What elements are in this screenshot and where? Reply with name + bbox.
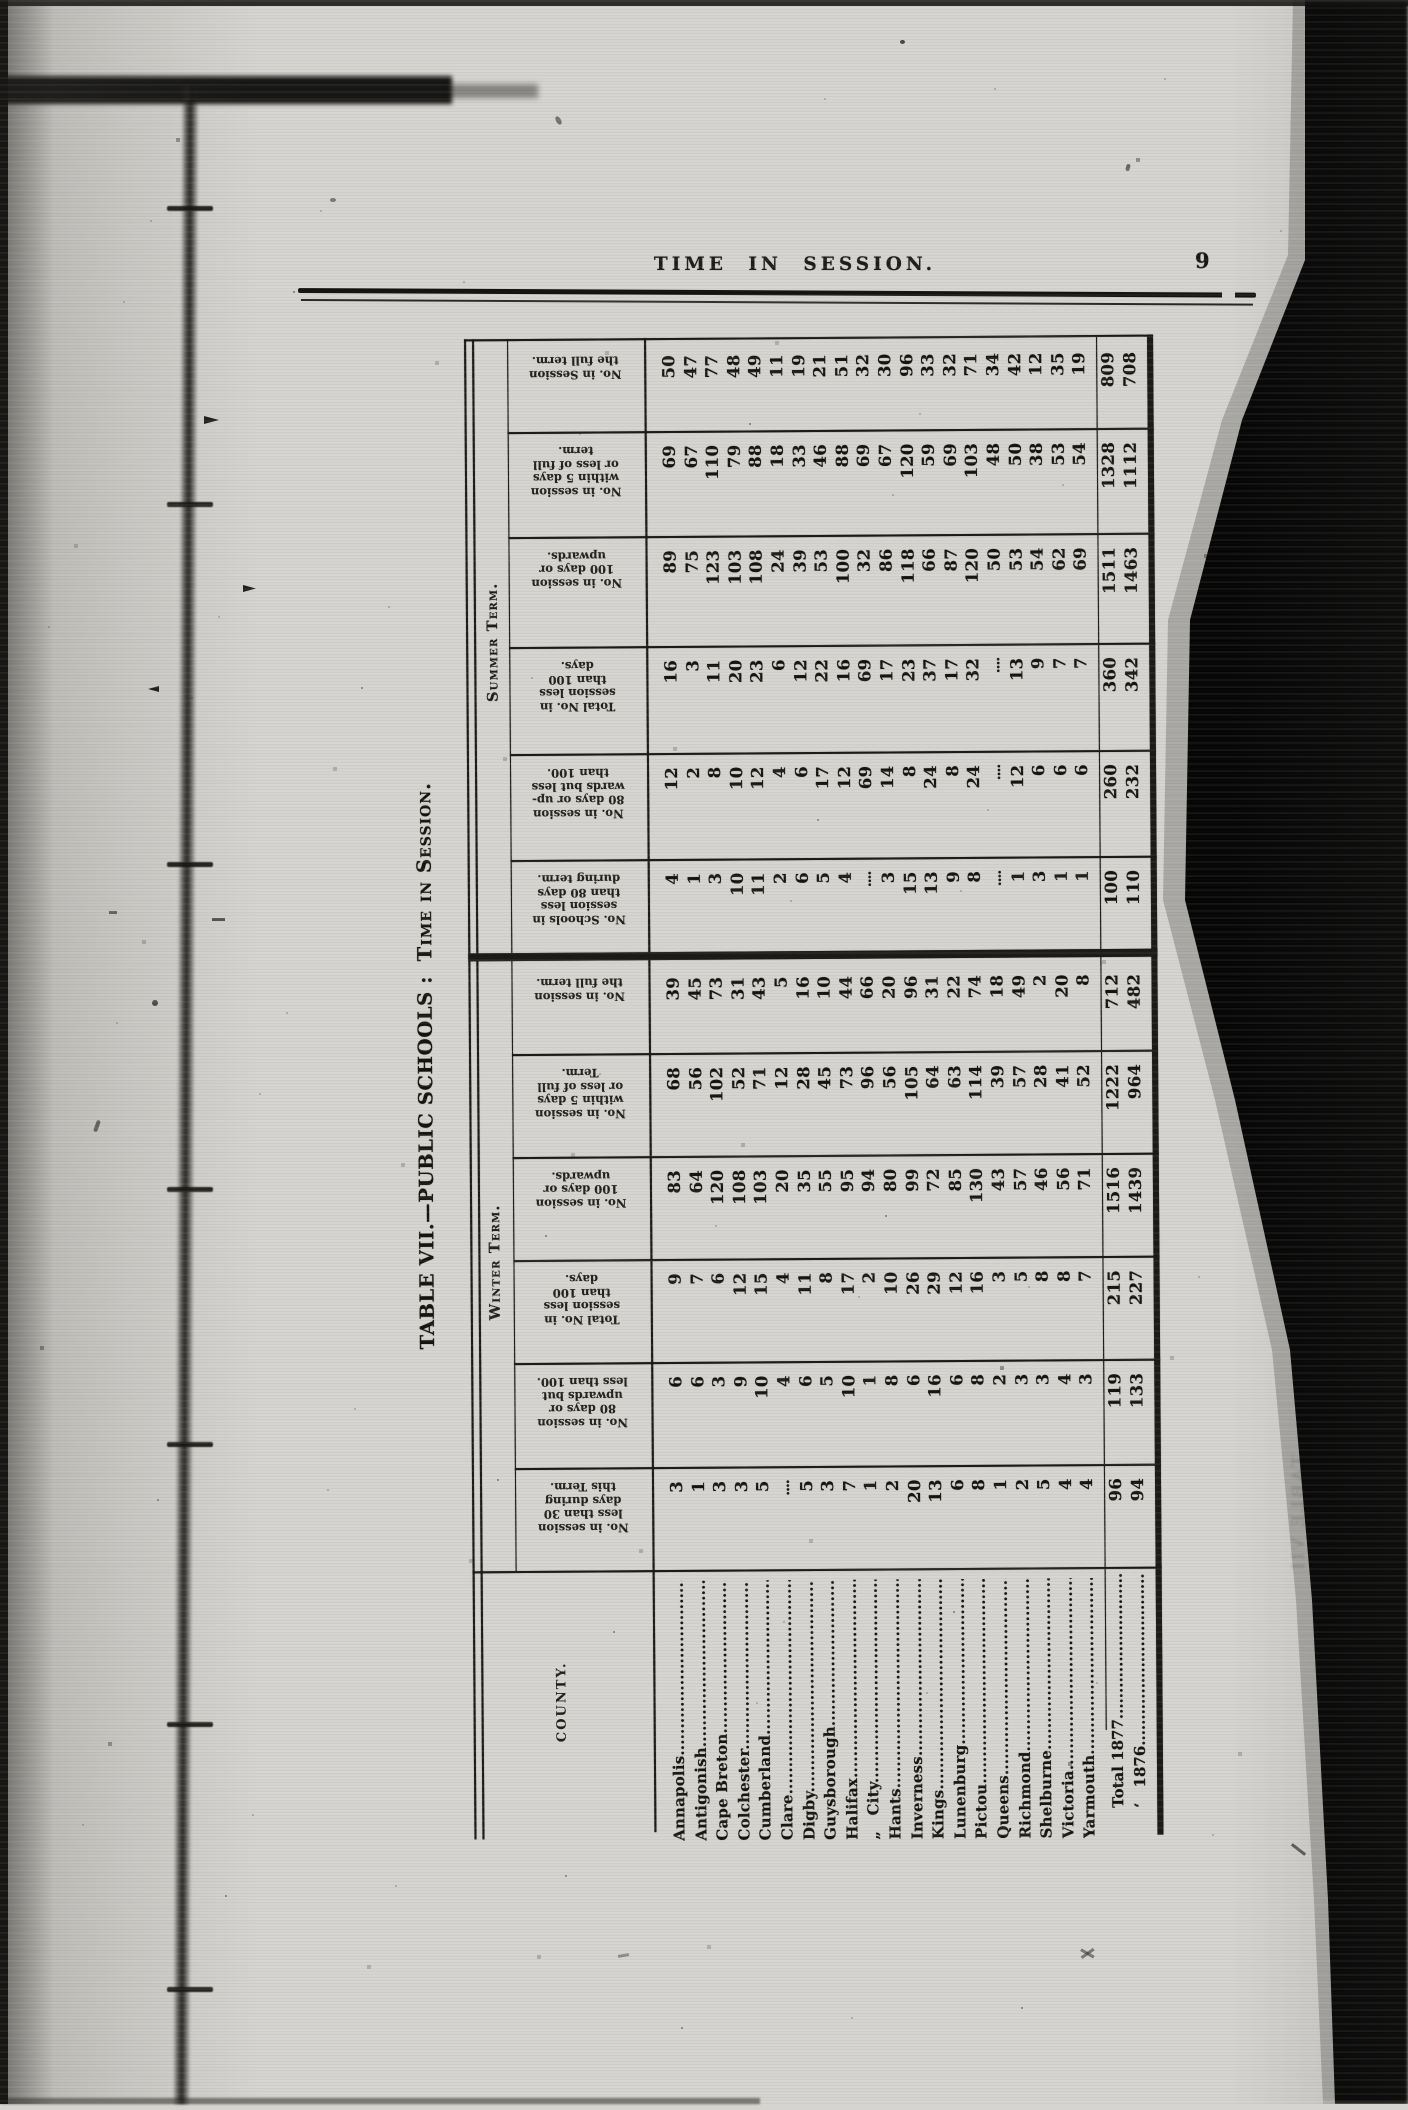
data-cell: 4 bbox=[770, 766, 790, 826]
data-cell: 67 bbox=[876, 443, 896, 503]
total-cell: 227 bbox=[1127, 1270, 1147, 1330]
data-cell: 6 bbox=[688, 1376, 708, 1436]
data-cell: .... bbox=[985, 658, 1005, 718]
data-cell: 3 bbox=[683, 660, 703, 720]
data-cell: 94 bbox=[859, 1169, 879, 1229]
data-cell: 5 bbox=[817, 1375, 837, 1435]
total-cell: 96 bbox=[1106, 1478, 1126, 1538]
data-cell: 53 bbox=[1049, 442, 1069, 502]
data-cell: 86 bbox=[877, 548, 897, 608]
data-cell: 28 bbox=[1031, 1064, 1051, 1124]
data-cell: 39 bbox=[663, 977, 683, 1037]
data-cell: 15 bbox=[900, 871, 920, 931]
data-cell: 51 bbox=[832, 354, 852, 414]
data-cell: 120 bbox=[708, 1170, 728, 1230]
data-cell: 11 bbox=[767, 354, 787, 414]
data-cell: 8 bbox=[882, 1374, 902, 1434]
data-cell: 103 bbox=[962, 443, 982, 503]
data-cell: 102 bbox=[707, 1067, 727, 1127]
data-cell: 3 bbox=[710, 1481, 730, 1541]
scan-top-edge bbox=[0, 0, 1408, 6]
data-cell: 5 bbox=[753, 1480, 773, 1540]
total-cell: 482 bbox=[1124, 974, 1144, 1034]
data-cell: 3 bbox=[818, 1480, 838, 1540]
stitch-mark bbox=[167, 502, 213, 507]
data-cell: 1 bbox=[991, 1479, 1011, 1539]
data-cell: 10 bbox=[727, 766, 747, 826]
data-cell: 120 bbox=[897, 443, 917, 503]
data-cell: 16 bbox=[661, 660, 681, 720]
data-cell: 5 bbox=[814, 872, 834, 932]
data-cell: 8 bbox=[965, 871, 985, 931]
data-cell: 16 bbox=[834, 659, 854, 719]
data-cell: 11 bbox=[749, 872, 769, 932]
data-cell: .... bbox=[775, 1480, 795, 1540]
county-label: Guysborough.............................… bbox=[819, 1580, 841, 1840]
county-label: Colchester..............................… bbox=[732, 1580, 754, 1840]
data-cell: 2 bbox=[684, 767, 704, 827]
data-cell: 10 bbox=[753, 1375, 773, 1435]
data-cell: 3 bbox=[1012, 1373, 1032, 1433]
data-cell: 13 bbox=[926, 1479, 946, 1539]
data-cell: 54 bbox=[1070, 442, 1090, 502]
data-cell: 99 bbox=[902, 1168, 922, 1228]
data-cell: 3 bbox=[706, 873, 726, 933]
total-cell: 94 bbox=[1128, 1478, 1148, 1538]
data-cell: 4 bbox=[836, 872, 856, 932]
term-group-label: Winter Term. bbox=[485, 1097, 504, 1427]
total-cell: 100 bbox=[1102, 870, 1122, 930]
data-cell: 12 bbox=[835, 766, 855, 826]
total-cell: 133 bbox=[1127, 1373, 1147, 1433]
data-cell: 12 bbox=[1026, 352, 1046, 412]
data-cell: 46 bbox=[1032, 1167, 1052, 1227]
data-cell: 39 bbox=[988, 1065, 1008, 1125]
total-cell: 712 bbox=[1102, 974, 1122, 1034]
data-cell: 6 bbox=[792, 766, 812, 826]
data-cell: 3 bbox=[1077, 1373, 1097, 1433]
county-label: Queens..................................… bbox=[992, 1579, 1014, 1839]
band-separator bbox=[511, 856, 1157, 862]
data-cell: 66 bbox=[858, 976, 878, 1036]
total-cell: 360 bbox=[1100, 657, 1120, 717]
data-cell: 62 bbox=[1049, 547, 1069, 607]
data-cell: 6 bbox=[709, 1273, 729, 1333]
data-cell: 69 bbox=[854, 444, 874, 504]
data-cell: 3 bbox=[879, 871, 899, 931]
data-cell: 73 bbox=[837, 1066, 857, 1126]
data-cell: 57 bbox=[1010, 1065, 1030, 1125]
column-header-label: Total No. insession lessthan 100days. bbox=[511, 658, 643, 713]
band-separator bbox=[513, 1153, 1159, 1159]
data-cell: 17 bbox=[942, 658, 962, 718]
data-cell: 14 bbox=[878, 765, 898, 825]
county-label: Yarmouth................................… bbox=[1078, 1578, 1100, 1838]
data-cell: 54 bbox=[1028, 547, 1048, 607]
data-cell: 15 bbox=[752, 1272, 772, 1332]
band-separator bbox=[513, 1256, 1159, 1262]
county-label: Halifax.................................… bbox=[840, 1580, 862, 1840]
total-cell: 809 bbox=[1098, 352, 1118, 412]
data-cell: 19 bbox=[789, 354, 809, 414]
data-cell: 69 bbox=[660, 445, 680, 505]
total-cell: 260 bbox=[1101, 764, 1121, 824]
total-cell: 964 bbox=[1125, 1064, 1145, 1124]
county-label: Inverness...............................… bbox=[905, 1579, 927, 1839]
data-cell: 118 bbox=[898, 548, 918, 608]
total-cell: 1439 bbox=[1126, 1167, 1146, 1227]
data-cell: 1 bbox=[861, 1375, 881, 1435]
data-cell: 1 bbox=[684, 873, 704, 933]
band-separator bbox=[510, 750, 1156, 756]
rotated-table: TABLE VII.—PUBLIC SCHOOLS : Time in Sess… bbox=[0, 0, 1408, 2110]
data-cell: .... bbox=[987, 871, 1007, 931]
data-cell: 4 bbox=[1056, 1478, 1076, 1538]
data-cell: 50 bbox=[659, 355, 679, 415]
data-cell: 6 bbox=[796, 1375, 816, 1435]
data-cell: 22 bbox=[944, 975, 964, 1035]
data-cell: 88 bbox=[833, 444, 853, 504]
data-cell: 6 bbox=[904, 1374, 924, 1434]
data-cell: 16 bbox=[793, 976, 813, 1036]
data-cell: 5 bbox=[1011, 1270, 1031, 1330]
data-cell: 88 bbox=[746, 444, 766, 504]
data-cell: 12 bbox=[1008, 765, 1028, 825]
data-cell: 12 bbox=[662, 767, 682, 827]
page-edge-shadow-tail bbox=[448, 84, 538, 98]
total-cell: 110 bbox=[1124, 870, 1144, 930]
data-cell: 46 bbox=[811, 444, 831, 504]
band-separator bbox=[515, 1464, 1161, 1470]
data-cell: 3 bbox=[667, 1481, 687, 1541]
county-label: Clare...................................… bbox=[776, 1580, 798, 1840]
stitch-mark bbox=[167, 206, 213, 211]
data-cell: 45 bbox=[685, 977, 705, 1037]
data-cell: 57 bbox=[1010, 1167, 1030, 1227]
stitch-mark bbox=[167, 1442, 213, 1447]
band-separator bbox=[509, 643, 1155, 649]
data-cell: 43 bbox=[750, 976, 770, 1036]
data-cell: 6 bbox=[1029, 764, 1049, 824]
data-cell: 13 bbox=[1007, 658, 1027, 718]
data-cell: 20 bbox=[905, 1479, 925, 1539]
data-cell: 4 bbox=[1077, 1478, 1097, 1538]
data-cell: 5 bbox=[797, 1480, 817, 1540]
data-cell: 4 bbox=[774, 1272, 794, 1332]
data-cell: 80 bbox=[881, 1168, 901, 1228]
page-edge-shadow bbox=[0, 76, 452, 104]
data-cell: 23 bbox=[899, 658, 919, 718]
data-cell: 9 bbox=[944, 871, 964, 931]
county-label: Kings...................................… bbox=[927, 1579, 949, 1839]
total-cell: 708 bbox=[1120, 352, 1140, 412]
data-cell: 6 bbox=[666, 1376, 686, 1436]
data-cell: 75 bbox=[682, 550, 702, 610]
column-header-label: No. in session80 days or up-wards but le… bbox=[512, 765, 644, 820]
data-cell: 68 bbox=[664, 1067, 684, 1127]
data-cell: 9 bbox=[666, 1273, 686, 1333]
county-label: Lunenburg...............................… bbox=[948, 1579, 970, 1839]
data-cell: 59 bbox=[919, 443, 939, 503]
data-cell: 9 bbox=[731, 1375, 751, 1435]
data-cell: 95 bbox=[838, 1169, 858, 1229]
data-cell: 17 bbox=[877, 658, 897, 718]
data-cell: 16 bbox=[925, 1374, 945, 1434]
total-cell: 1463 bbox=[1121, 547, 1141, 607]
data-cell: 4 bbox=[1055, 1373, 1075, 1433]
data-cell: 33 bbox=[918, 353, 938, 413]
data-cell: 41 bbox=[1053, 1064, 1073, 1124]
data-cell: 24 bbox=[769, 549, 789, 609]
county-label: Digby...................................… bbox=[797, 1580, 819, 1840]
term-group-label: Summer Term. bbox=[483, 477, 502, 807]
data-cell: 9 bbox=[1028, 657, 1048, 717]
data-cell: 5 bbox=[1034, 1478, 1054, 1538]
data-cell: 35 bbox=[794, 1169, 814, 1229]
data-cell: 42 bbox=[1005, 353, 1025, 413]
scan-left-edge bbox=[0, 0, 8, 2104]
data-cell: 31 bbox=[728, 976, 748, 1036]
stitch-mark bbox=[167, 862, 213, 867]
data-cell: 64 bbox=[923, 1065, 943, 1125]
data-cell: 12 bbox=[748, 766, 768, 826]
data-cell: 4 bbox=[663, 873, 683, 933]
data-cell: 8 bbox=[1033, 1270, 1053, 1330]
county-label: Cape Breton.............................… bbox=[711, 1581, 733, 1841]
data-cell: 120 bbox=[963, 548, 983, 608]
data-cell: 44 bbox=[836, 976, 856, 1036]
scanned-report-page: { "page": { "header": "TIME IN SESSION."… bbox=[0, 0, 1408, 2104]
data-cell: 83 bbox=[665, 1170, 685, 1230]
data-cell: 89 bbox=[661, 550, 681, 610]
data-cell: 8 bbox=[900, 765, 920, 825]
data-cell: 123 bbox=[704, 550, 724, 610]
data-cell: 72 bbox=[924, 1168, 944, 1228]
data-cell: 10 bbox=[815, 976, 835, 1036]
data-cell: 12 bbox=[730, 1272, 750, 1332]
data-cell: 67 bbox=[681, 445, 701, 505]
data-cell: 18 bbox=[768, 444, 788, 504]
data-cell: 8 bbox=[705, 767, 725, 827]
data-cell: 6 bbox=[1051, 764, 1071, 824]
data-cell: 96 bbox=[901, 975, 921, 1035]
total-cell: 1112 bbox=[1121, 442, 1141, 502]
data-cell: 12 bbox=[946, 1271, 966, 1331]
data-cell: 32 bbox=[855, 549, 875, 609]
data-cell: 10 bbox=[728, 872, 748, 932]
data-cell: 2 bbox=[1031, 974, 1051, 1034]
data-cell: 53 bbox=[812, 549, 832, 609]
data-cell: 18 bbox=[987, 975, 1007, 1035]
total-cell: 1511 bbox=[1099, 547, 1119, 607]
data-cell: 87 bbox=[941, 548, 961, 608]
data-cell: 10 bbox=[882, 1271, 902, 1331]
scan-left-shadow bbox=[8, 0, 54, 2104]
data-cell: 2 bbox=[883, 1479, 903, 1539]
data-cell: 32 bbox=[964, 658, 984, 718]
data-cell: 4 bbox=[774, 1375, 794, 1435]
data-cell: 105 bbox=[902, 1065, 922, 1125]
data-cell: 37 bbox=[920, 658, 940, 718]
county-label: Victoria................................… bbox=[1056, 1578, 1078, 1838]
column-header-label: Total No. insession lessthan 100days. bbox=[516, 1271, 648, 1326]
data-cell: 19 bbox=[1070, 352, 1090, 412]
total-row-label: ‘ 1876..................................… bbox=[1129, 1573, 1151, 1808]
table-right-border bbox=[1147, 335, 1163, 1835]
data-cell: 8 bbox=[969, 1374, 989, 1434]
stitch-mark bbox=[167, 1987, 213, 1992]
data-cell: 24 bbox=[964, 765, 984, 825]
column-header-label: No. in Sessionthe full term. bbox=[509, 353, 641, 381]
data-cell: 22 bbox=[812, 659, 832, 719]
data-cell: 1 bbox=[1052, 870, 1072, 930]
data-cell: 108 bbox=[730, 1169, 750, 1229]
data-cell: 2 bbox=[990, 1374, 1010, 1434]
data-cell: 114 bbox=[966, 1065, 986, 1125]
data-cell: 50 bbox=[1005, 443, 1025, 503]
data-cell: 63 bbox=[945, 1065, 965, 1125]
band-separator bbox=[508, 533, 1154, 539]
column-header-label: No. in sessionless than 30days duringthi… bbox=[517, 1479, 649, 1534]
table-title-main: TABLE VII.—PUBLIC SCHOOLS : bbox=[413, 976, 439, 1350]
county-label: Pictou..................................… bbox=[970, 1579, 992, 1839]
data-cell: 48 bbox=[984, 443, 1004, 503]
data-cell: 6 bbox=[792, 872, 812, 932]
data-cell: 50 bbox=[984, 548, 1004, 608]
data-cell: 11 bbox=[795, 1272, 815, 1332]
data-cell: 3 bbox=[732, 1480, 752, 1540]
data-cell: 130 bbox=[967, 1168, 987, 1228]
data-cell: 52 bbox=[729, 1066, 749, 1126]
total-cell: 1328 bbox=[1099, 442, 1119, 502]
data-cell: 6 bbox=[947, 1374, 967, 1434]
data-cell: .... bbox=[986, 765, 1006, 825]
table-title: TABLE VII.—PUBLIC SCHOOLS : Time in Sess… bbox=[410, 666, 442, 1466]
data-cell: 71 bbox=[1075, 1167, 1095, 1227]
data-cell: 3 bbox=[990, 1271, 1010, 1331]
county-label: Antigonish..............................… bbox=[689, 1581, 711, 1841]
data-cell: 2 bbox=[860, 1272, 880, 1332]
data-cell: 8 bbox=[817, 1272, 837, 1332]
data-cell: 79 bbox=[725, 444, 745, 504]
data-cell: 6 bbox=[1072, 764, 1092, 824]
data-cell: 28 bbox=[794, 1066, 814, 1126]
county-strip-rule bbox=[473, 1567, 1162, 1574]
column-header-label: No. in sessionwithin 5 daysor less of fu… bbox=[514, 1065, 646, 1120]
column-header-label: No. in sessionthe full term. bbox=[513, 975, 645, 1003]
column-header-label: No. in session100 days orupwards. bbox=[515, 1168, 647, 1210]
data-cell: 69 bbox=[856, 659, 876, 719]
total-row-label: Total 1877..............................… bbox=[1107, 1573, 1129, 1808]
data-cell: 103 bbox=[751, 1169, 771, 1229]
term-divider-rule bbox=[468, 949, 1157, 962]
data-cell: 23 bbox=[748, 659, 768, 719]
data-cell: 56 bbox=[1054, 1167, 1074, 1227]
band-separator bbox=[514, 1359, 1160, 1365]
data-cell: 110 bbox=[703, 445, 723, 505]
data-cell: 56 bbox=[880, 1065, 900, 1125]
stitch-mark bbox=[167, 1722, 213, 1727]
data-cell: 24 bbox=[921, 765, 941, 825]
band-separator bbox=[512, 1050, 1158, 1056]
data-cell: 73 bbox=[707, 977, 727, 1037]
data-cell: 85 bbox=[946, 1168, 966, 1228]
data-cell: 3 bbox=[1033, 1373, 1053, 1433]
data-cell: 39 bbox=[790, 549, 810, 609]
data-cell: 35 bbox=[1048, 352, 1068, 412]
data-cell: 13 bbox=[922, 871, 942, 931]
data-cell: 6 bbox=[769, 659, 789, 719]
data-cell: 1 bbox=[1073, 870, 1093, 930]
data-cell: 3 bbox=[1030, 870, 1050, 930]
data-cell: 6 bbox=[948, 1479, 968, 1539]
data-cell: 56 bbox=[686, 1067, 706, 1127]
data-cell: 8 bbox=[969, 1479, 989, 1539]
data-cell: 49 bbox=[1009, 975, 1029, 1035]
data-cell: .... bbox=[857, 872, 877, 932]
table-top-border bbox=[464, 335, 1153, 342]
data-cell: 20 bbox=[879, 975, 899, 1035]
data-cell: 96 bbox=[859, 1066, 879, 1126]
data-cell: 10 bbox=[839, 1375, 859, 1435]
band-separator bbox=[508, 428, 1154, 434]
data-cell: 12 bbox=[791, 659, 811, 719]
data-cell: 32 bbox=[854, 354, 874, 414]
data-cell: 26 bbox=[903, 1271, 923, 1331]
data-cell: 21 bbox=[810, 354, 830, 414]
data-cell: 20 bbox=[1052, 974, 1072, 1034]
data-cell: 7 bbox=[840, 1480, 860, 1540]
scan-bottom-edge bbox=[0, 2098, 760, 2104]
data-cell: 100 bbox=[833, 549, 853, 609]
data-cell: 103 bbox=[725, 549, 745, 609]
data-cell: 49 bbox=[746, 354, 766, 414]
column-header-label: No. in sessionwithin 5 daysor less of fu… bbox=[510, 443, 642, 498]
data-cell: 34 bbox=[983, 353, 1003, 413]
data-cell: 2 bbox=[1013, 1478, 1033, 1538]
data-cell: 108 bbox=[747, 549, 767, 609]
data-cell: 17 bbox=[838, 1272, 858, 1332]
data-cell: 69 bbox=[1071, 547, 1091, 607]
data-cell: 8 bbox=[1054, 1270, 1074, 1330]
county-label: Hants...................................… bbox=[884, 1579, 906, 1839]
data-cell: 8 bbox=[1074, 974, 1094, 1034]
data-cell: 77 bbox=[702, 355, 722, 415]
data-cell: 8 bbox=[943, 765, 963, 825]
data-cell: 38 bbox=[1027, 442, 1047, 502]
data-cell: 69 bbox=[941, 443, 961, 503]
total-cell: 1222 bbox=[1103, 1064, 1123, 1124]
total-cell: 215 bbox=[1105, 1270, 1125, 1330]
data-cell: 30 bbox=[875, 353, 895, 413]
total-cell: 1516 bbox=[1104, 1167, 1124, 1227]
data-cell: 43 bbox=[989, 1168, 1009, 1228]
data-cell: 1 bbox=[861, 1480, 881, 1540]
data-cell: 53 bbox=[1006, 548, 1026, 608]
data-cell: 33 bbox=[789, 444, 809, 504]
data-cell: 7 bbox=[1072, 657, 1092, 717]
data-cell: 31 bbox=[923, 975, 943, 1035]
total-cell: 119 bbox=[1105, 1373, 1125, 1433]
table-title-session: Time in Session. bbox=[412, 782, 436, 961]
data-cell: 32 bbox=[940, 353, 960, 413]
column-header-label: No. in session80 days orupwards butless … bbox=[516, 1374, 648, 1429]
data-cell: 7 bbox=[1050, 657, 1070, 717]
data-cell: 29 bbox=[925, 1271, 945, 1331]
data-cell: 16 bbox=[968, 1271, 988, 1331]
data-cell: 20 bbox=[726, 659, 746, 719]
data-cell: 74 bbox=[966, 975, 986, 1035]
